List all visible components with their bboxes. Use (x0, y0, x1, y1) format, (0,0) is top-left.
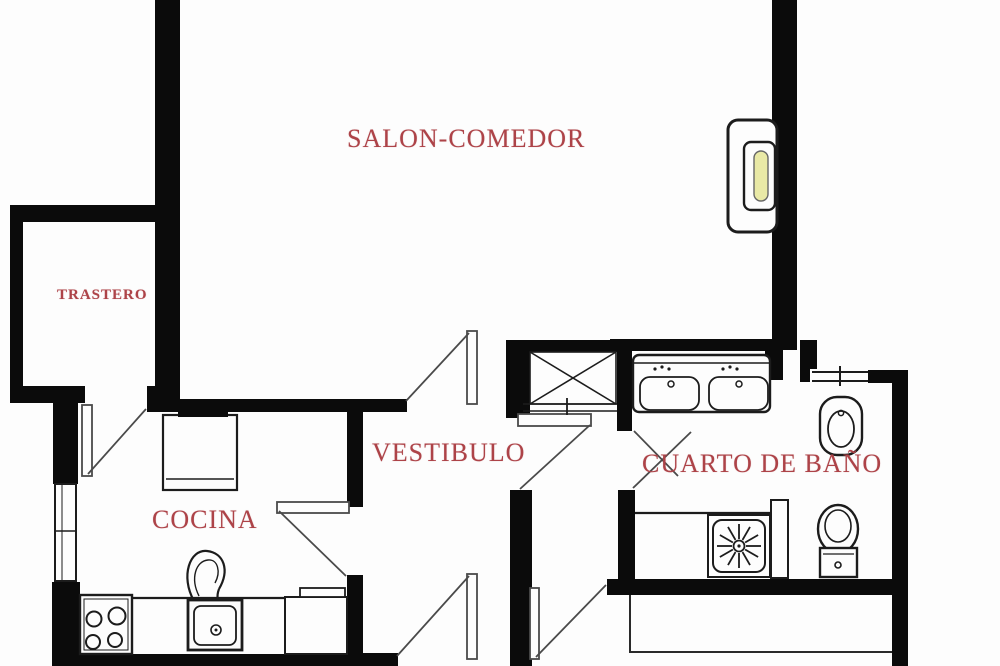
wall-segment (610, 339, 772, 351)
wardrobe-icon (523, 352, 617, 415)
counter-appliance-icon (285, 588, 347, 654)
floor-plan-drawing (0, 0, 1000, 666)
room-label-salon-comedor: SALON-COMEDOR (347, 126, 585, 152)
wall-segment (147, 386, 180, 412)
room-label-cocina: COCINA (152, 507, 258, 533)
wall-segment (347, 410, 363, 507)
room-label-trastero: TRASTERO (57, 288, 148, 303)
kitchen-window (55, 484, 76, 581)
bidet-icon (820, 397, 862, 455)
wall-segment (78, 654, 366, 666)
hall-door-swing (518, 414, 591, 489)
wall-segment (363, 653, 398, 666)
entrance-door-right-swing (530, 585, 606, 659)
terrace-outline (629, 595, 892, 653)
sink-icon (188, 600, 242, 650)
wall-segment (52, 582, 80, 666)
trastero-door-swing (82, 405, 146, 476)
room-label-vestibulo: VESTIBULO (372, 440, 525, 466)
stove-icon (80, 595, 132, 654)
wall-segment (617, 340, 632, 431)
wall-segment (155, 0, 180, 412)
wall-segment (347, 575, 363, 666)
wall-segment (53, 399, 78, 484)
wall-segment (607, 579, 893, 595)
wall-segment (892, 370, 908, 666)
fridge-icon (163, 409, 237, 490)
bathroom-window (810, 366, 868, 386)
wall-segment (510, 490, 532, 666)
wall-segment (10, 205, 157, 222)
double-sink-vanity-icon (633, 355, 770, 412)
salon-vestibule-door-swing (406, 331, 477, 404)
shower-screen (771, 500, 788, 578)
room-label-cuarto-de-bano: CUARTO DE BAÑO (642, 451, 882, 477)
toilet-icon (818, 505, 858, 577)
wall-segment (10, 205, 23, 403)
entrance-door-left-swing (397, 574, 477, 659)
floor-plan: SALON-COMEDOR TRASTERO COCINA VESTIBULO … (0, 0, 1000, 666)
radiator-icon (728, 120, 777, 232)
kitchen-door-swing (277, 502, 349, 576)
shower-tray-icon (635, 513, 771, 577)
